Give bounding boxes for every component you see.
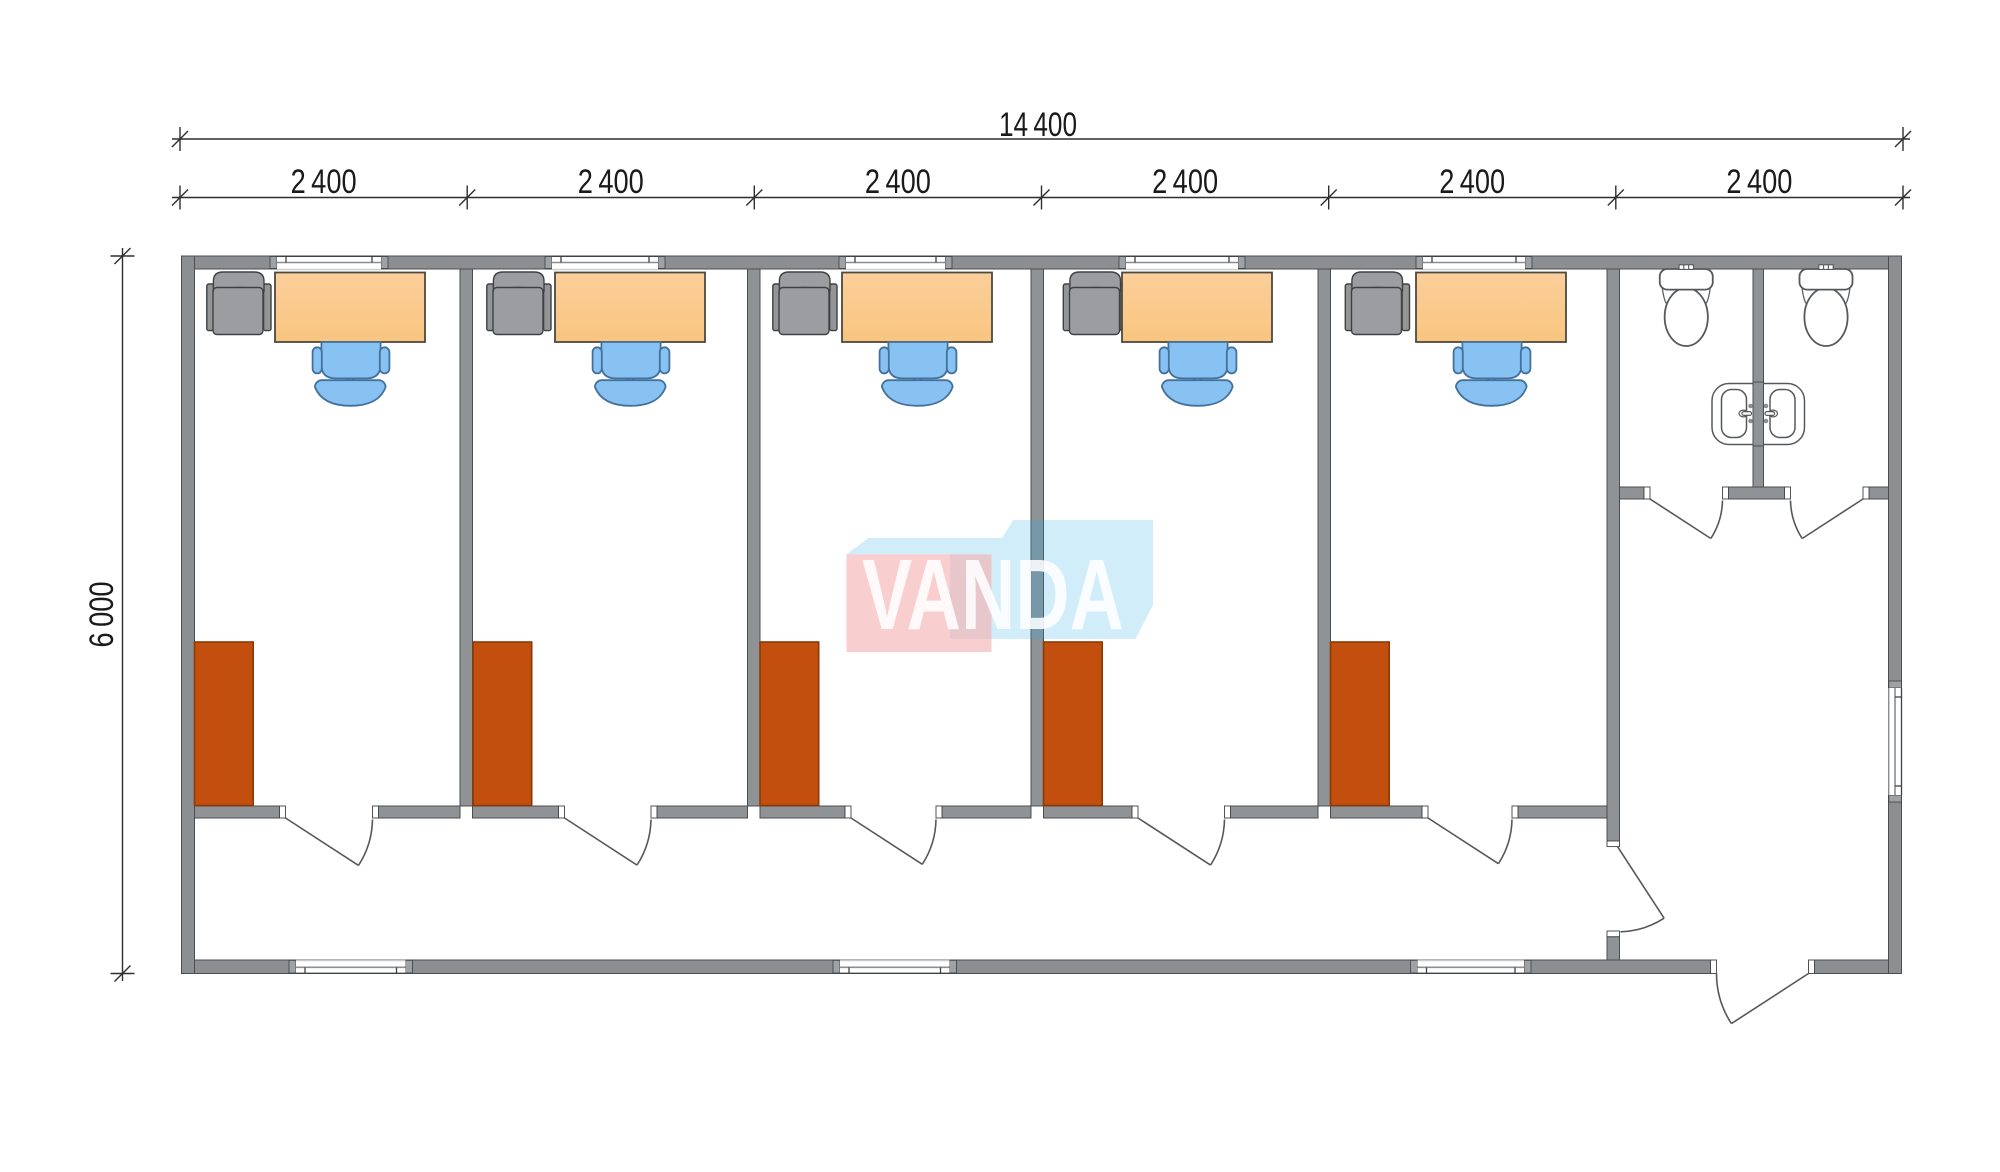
svg-text:2 400: 2 400 xyxy=(1726,163,1792,201)
svg-text:2 400: 2 400 xyxy=(1152,163,1218,201)
svg-text:VANDA: VANDA xyxy=(862,539,1124,651)
svg-text:14 400: 14 400 xyxy=(999,106,1077,144)
svg-text:2 400: 2 400 xyxy=(578,163,644,201)
svg-text:2 400: 2 400 xyxy=(865,163,931,201)
svg-text:6 000: 6 000 xyxy=(83,582,121,648)
svg-text:2 400: 2 400 xyxy=(291,163,357,201)
svg-text:2 400: 2 400 xyxy=(1439,163,1505,201)
